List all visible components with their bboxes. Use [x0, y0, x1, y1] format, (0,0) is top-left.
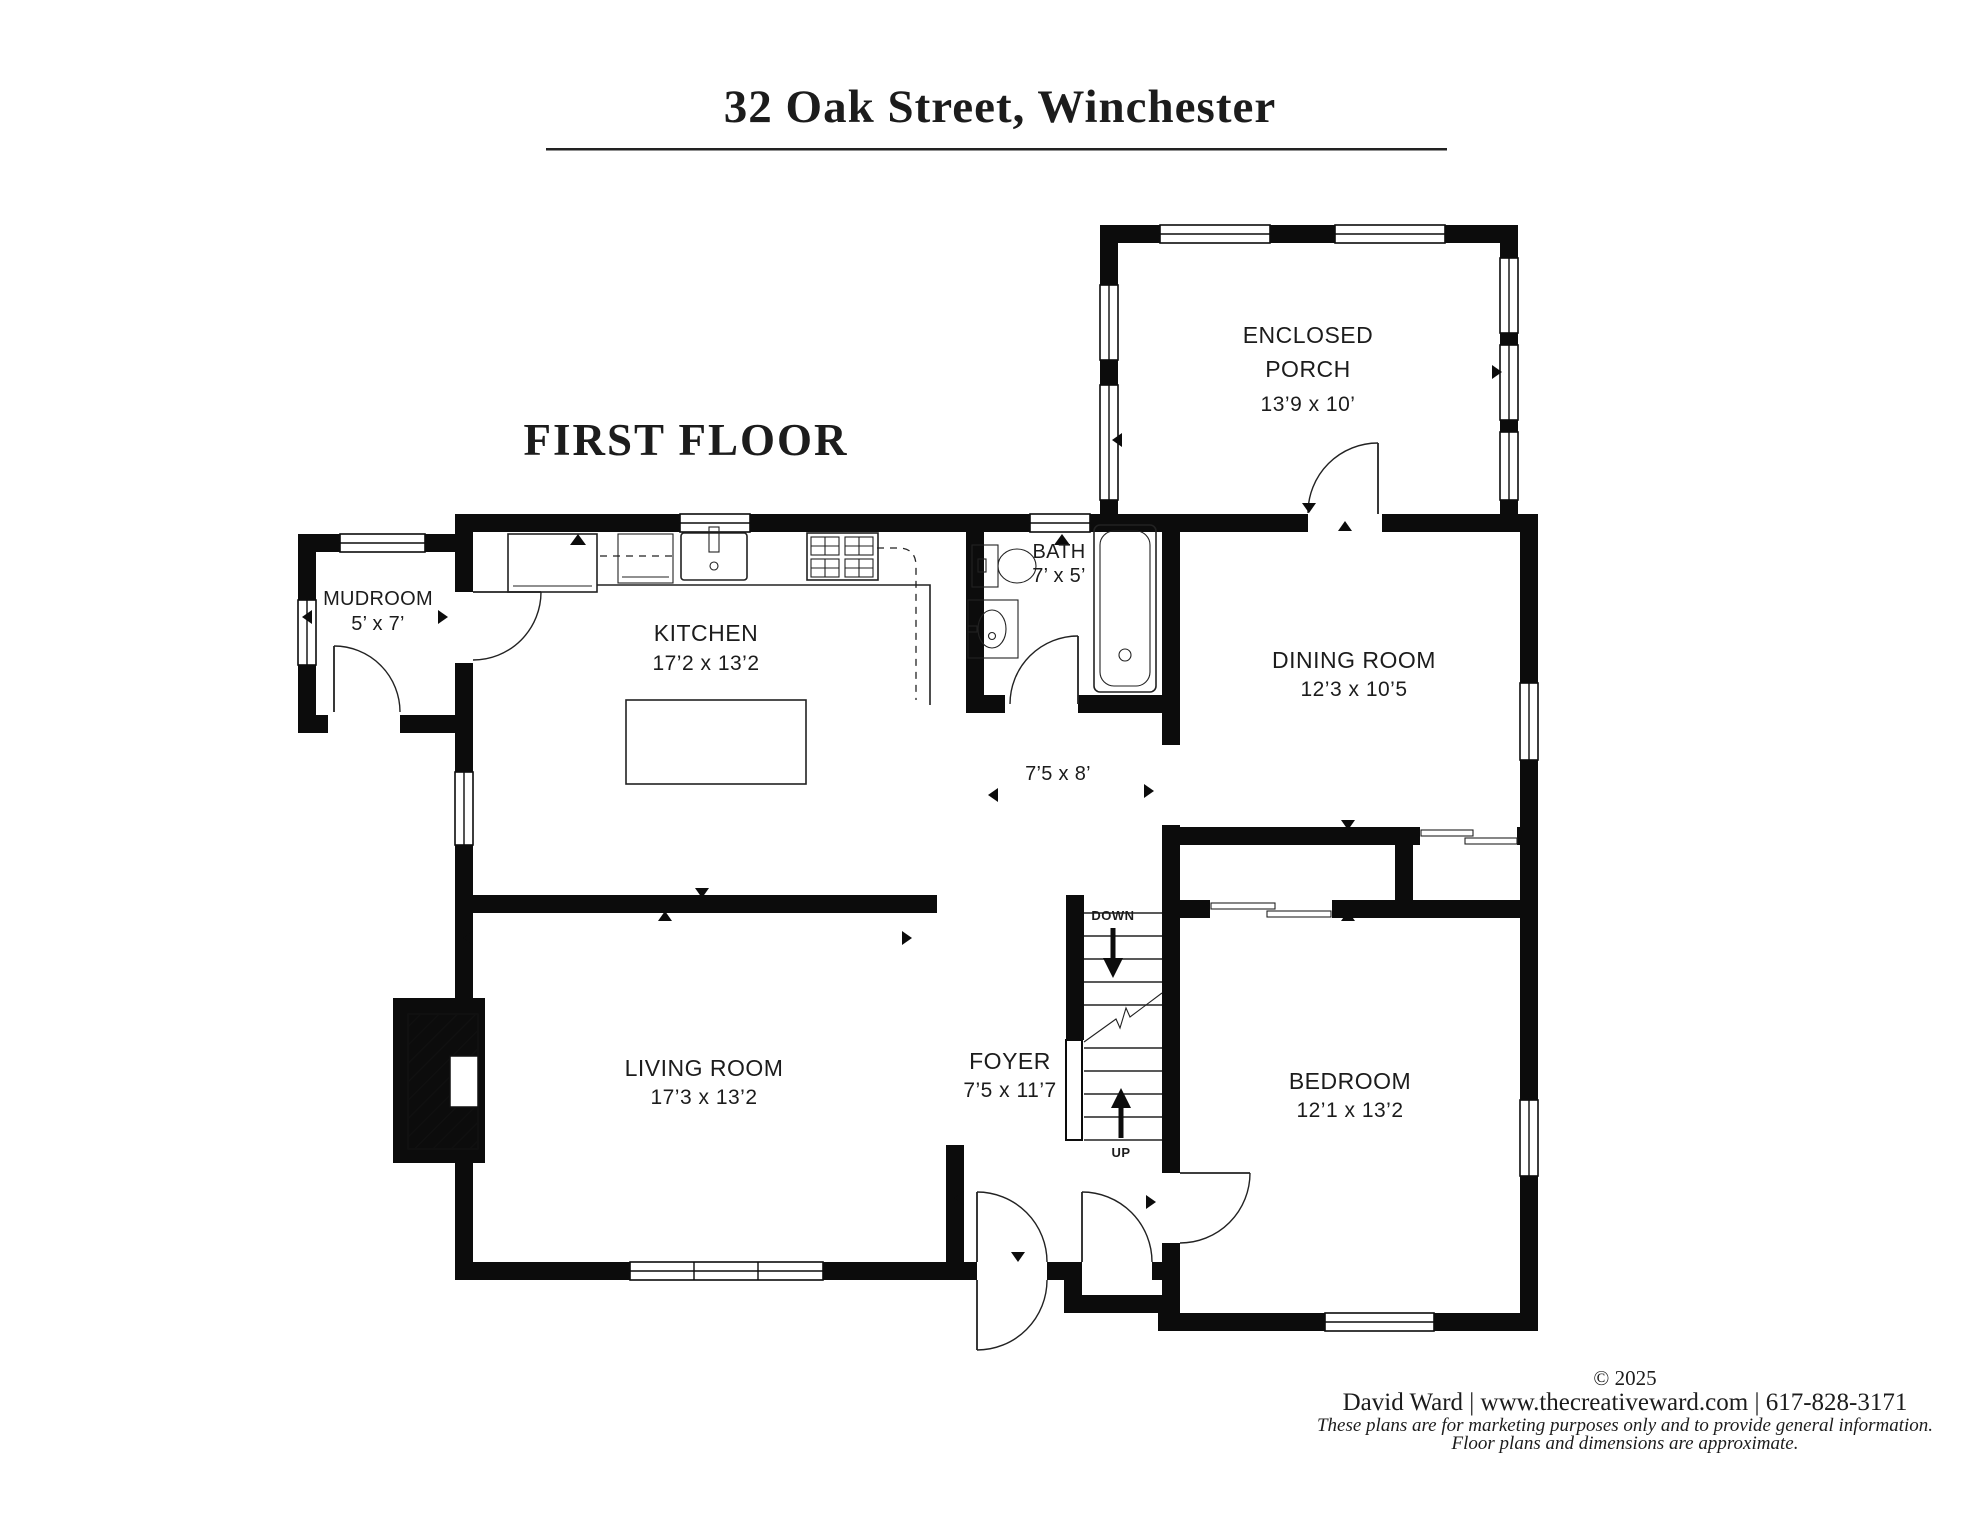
firebox [450, 1056, 478, 1107]
mudroom-name: MUDROOM [323, 588, 433, 610]
floor-label: FIRST FLOOR [524, 415, 849, 465]
porch-name-line2: PORCH [1265, 356, 1351, 382]
label-living-room: LIVING ROOM 17’3 x 13’2 [625, 1055, 784, 1109]
mudroom-window-top [340, 534, 425, 552]
porch-name-line1: ENCLOSED [1243, 322, 1374, 348]
stairs-down-label: DOWN [1091, 908, 1134, 923]
floor-plan-canvas: 32 Oak Street, Winchester FIRST FLOOR [0, 0, 1988, 1536]
living-name: LIVING ROOM [625, 1055, 784, 1081]
stove [807, 533, 878, 580]
dining-name: DINING ROOM [1272, 647, 1436, 673]
label-mudroom: MUDROOM 5’ x 7’ [323, 588, 433, 635]
stairs-up-indicator: UP [1111, 1088, 1131, 1160]
foyer-name: FOYER [969, 1048, 1051, 1074]
stairs-up-label: UP [1111, 1145, 1130, 1160]
room-labels: ENCLOSED PORCH 13’9 x 10’ MUDROOM 5’ x 7… [323, 322, 1436, 1122]
mudroom-dims: 5’ x 7’ [351, 613, 405, 635]
windows [298, 225, 1538, 1331]
kitchen-island [626, 700, 806, 784]
bathtub [1094, 525, 1156, 692]
floor-plan-page: 32 Oak Street, Winchester FIRST FLOOR [0, 0, 1988, 1536]
footer-contact: David Ward | www.thecreativeward.com | 6… [1343, 1389, 1908, 1416]
mudroom-window-left [298, 600, 316, 665]
bedroom-door [1180, 1173, 1250, 1243]
fireplace [408, 1014, 478, 1149]
dining-window-right [1520, 683, 1538, 760]
dining-closet-slider [1420, 827, 1517, 845]
walls [298, 225, 1538, 1331]
footer: © 2025 David Ward | www.thecreativeward.… [1317, 1366, 1933, 1454]
hallway-dims: 7’5 x 8’ [1025, 763, 1091, 785]
kitchen-sink [681, 527, 747, 580]
stair-railing [1066, 1040, 1082, 1140]
label-bath: BATH 7’ x 5’ [1032, 541, 1086, 587]
bedroom-closet-slider [1210, 900, 1332, 918]
bedroom-dims: 12’1 x 13’2 [1296, 1099, 1403, 1122]
dining-dims: 12’3 x 10’5 [1300, 678, 1407, 701]
dishwasher [618, 534, 673, 583]
kitchen-dims: 17’2 x 13’2 [652, 652, 759, 675]
page-title: 32 Oak Street, Winchester [724, 81, 1276, 133]
kitchen-window-sink [680, 514, 750, 532]
porch-window-top-right [1335, 225, 1445, 243]
label-enclosed-porch: ENCLOSED PORCH 13’9 x 10’ [1243, 322, 1374, 416]
title-underline [546, 148, 1447, 151]
porch-door [1308, 443, 1378, 514]
porch-window-right-2 [1500, 345, 1518, 420]
footer-copyright: © 2025 [1593, 1366, 1656, 1390]
label-bedroom: BEDROOM 12’1 x 13’2 [1289, 1068, 1411, 1122]
upper-cabinets-dashed-corner [877, 548, 916, 700]
label-dining-room: DINING ROOM 12’3 x 10’5 [1272, 647, 1436, 701]
porch-window-left-2 [1100, 385, 1118, 500]
stairs-down-indicator: DOWN [1091, 908, 1134, 978]
bedroom-window-bottom [1325, 1313, 1434, 1331]
living-window-bottom [630, 1262, 823, 1280]
foyer-dims: 7’5 x 11’7 [963, 1079, 1056, 1102]
foyer-side-door [1082, 1192, 1152, 1262]
porch-window-right-1 [1500, 258, 1518, 333]
bedroom-window-right [1520, 1100, 1538, 1176]
label-kitchen: KITCHEN 17’2 x 13’2 [652, 620, 759, 675]
mudroom-kitchen-door [473, 592, 541, 660]
mudroom-exterior-door [334, 646, 400, 712]
living-dims: 17’3 x 13’2 [650, 1086, 757, 1109]
stair-break-line [1084, 993, 1162, 1042]
bath-dims: 7’ x 5’ [1032, 565, 1086, 587]
bath-name: BATH [1032, 541, 1085, 563]
counter-edge [597, 585, 930, 705]
bath-window-top [1030, 514, 1090, 532]
porch-window-left-1 [1100, 285, 1118, 360]
porch-window-right-3 [1500, 432, 1518, 500]
bedroom-name: BEDROOM [1289, 1068, 1411, 1094]
porch-window-top-left [1160, 225, 1270, 243]
footer-disclaimer-2: Floor plans and dimensions are approxima… [1451, 1433, 1799, 1454]
kitchen-window-left [455, 772, 473, 845]
porch-dims: 13’9 x 10’ [1261, 393, 1356, 416]
label-foyer: FOYER 7’5 x 11’7 [963, 1048, 1056, 1102]
bath-door [1010, 636, 1078, 704]
kitchen-name: KITCHEN [654, 620, 758, 646]
